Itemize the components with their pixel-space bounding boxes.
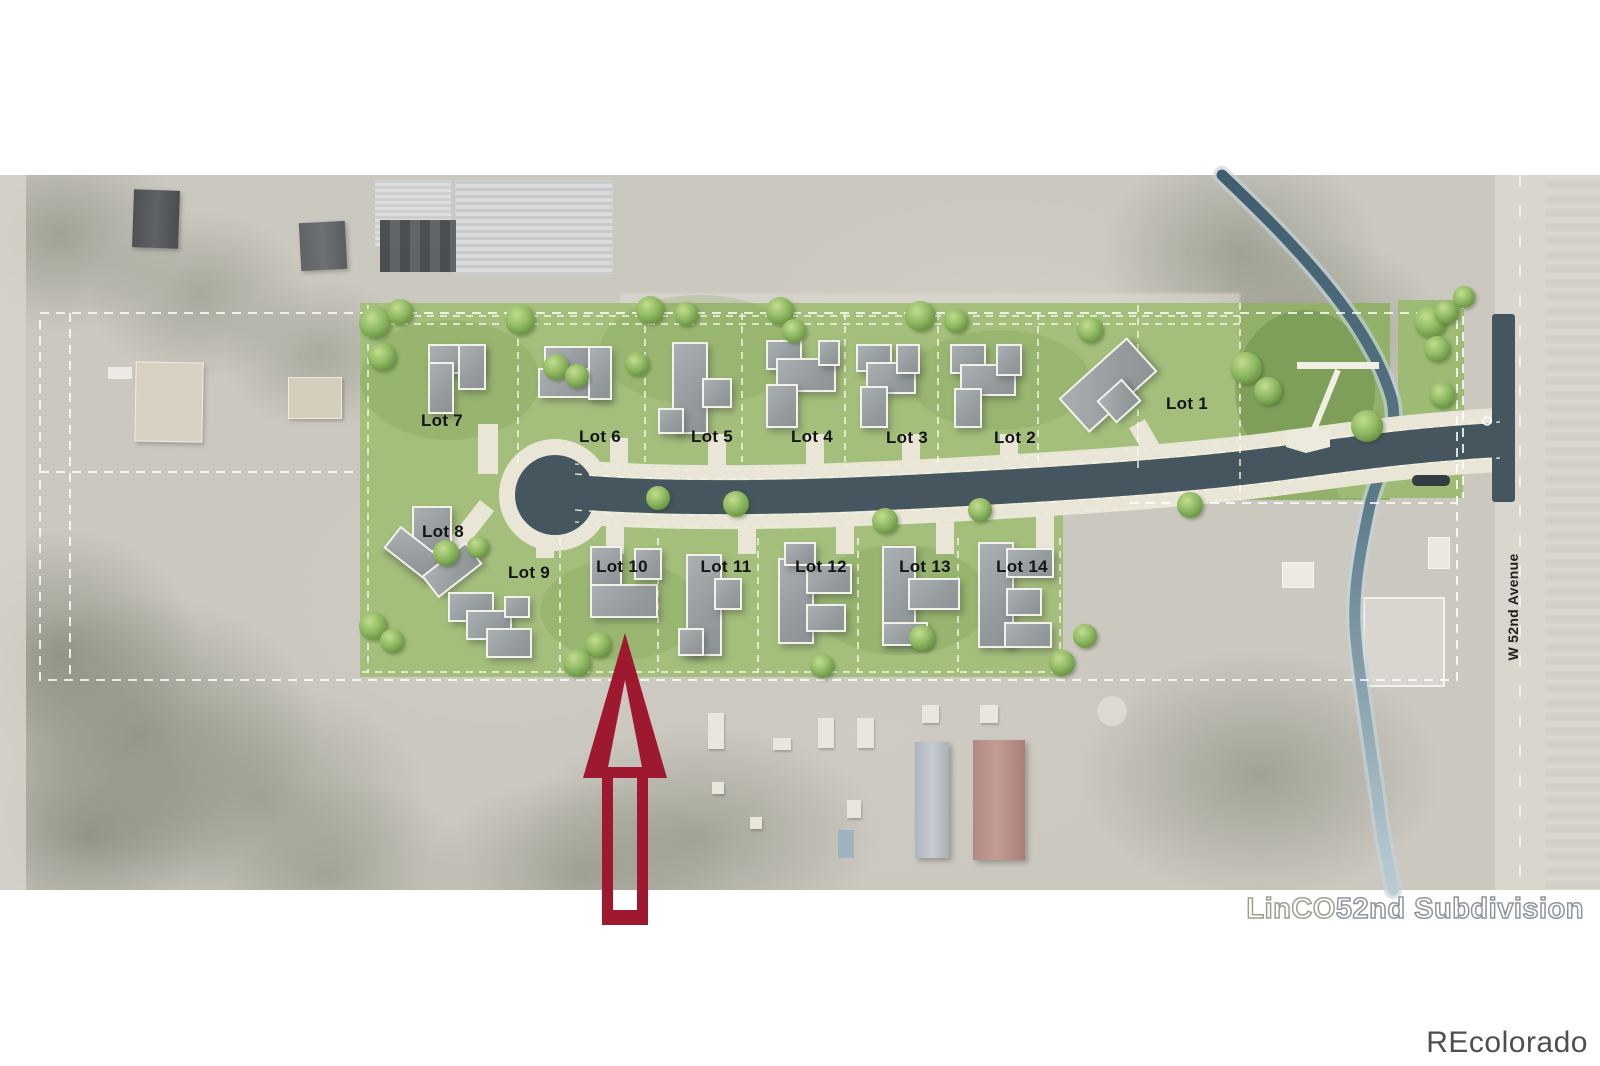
title-part1: LinCO bbox=[1246, 893, 1336, 925]
brand-watermark: REcolorado bbox=[1426, 1026, 1588, 1060]
subdivision-title-watermark: LinCO52nd Subdivision bbox=[1246, 893, 1584, 926]
site-plan-screenshot: Lot 1Lot 2Lot 3Lot 4Lot 5Lot 6Lot 7Lot 8… bbox=[0, 0, 1600, 1066]
title-part2: 52nd Subdivision bbox=[1336, 893, 1584, 925]
